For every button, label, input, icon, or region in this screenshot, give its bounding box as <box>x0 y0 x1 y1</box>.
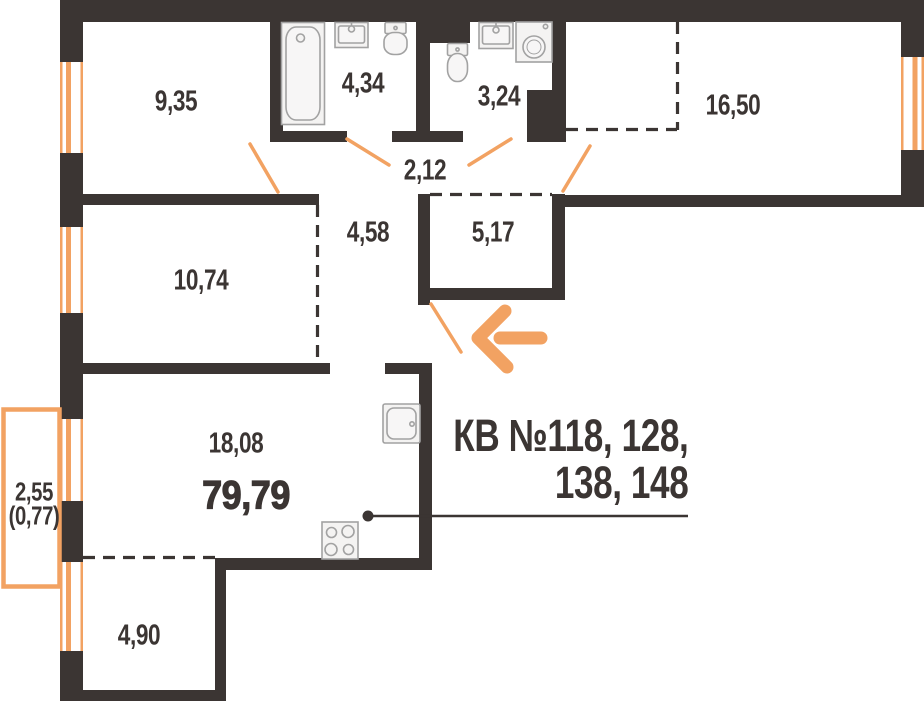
wall-room935-bottom <box>60 194 319 205</box>
door-swing-bath434 <box>347 139 389 165</box>
wall-closet-right <box>552 194 565 300</box>
room-area-label-1650: 16,50 <box>706 90 761 123</box>
wall-left-seg1 <box>60 0 83 62</box>
bathtub-icon <box>282 23 325 125</box>
floor-plan-drawing <box>0 0 924 701</box>
wall-top <box>60 0 924 22</box>
wall-bath434-bottom <box>270 131 347 142</box>
wall-bottom <box>60 690 226 701</box>
window-room490 <box>60 562 83 651</box>
room-area-label-324: 3,24 <box>478 81 520 114</box>
apartment-numbers: КВ №118, 128, 138, 148 <box>453 412 688 506</box>
wall-living-right <box>419 363 432 570</box>
room-area-label-1808: 18,08 <box>209 428 264 461</box>
window-room1650 <box>901 57 924 150</box>
room-area-label-1074: 10,74 <box>174 265 229 298</box>
duct-shaft-top <box>430 22 470 43</box>
window-living <box>60 419 83 501</box>
door-swing-bath324 <box>469 139 511 165</box>
wall-closet-bottom <box>418 288 565 300</box>
washing-machine-icon <box>516 22 552 62</box>
door-swing-entrance <box>431 304 461 352</box>
callout-dot <box>363 511 374 522</box>
floor-plan: 9,35 4,34 3,24 16,50 2,12 4,58 5,17 10,7… <box>0 0 924 701</box>
room-area-label-458: 4,58 <box>347 217 389 250</box>
wall-bath-mid-bottom <box>392 131 463 142</box>
balcony-area-reduced-label: (0,77) <box>9 501 60 532</box>
wall-room1074-bottom <box>60 363 330 374</box>
door-swing-room1650 <box>563 146 590 191</box>
apartment-numbers-line2: 138, 148 <box>453 459 688 506</box>
sink-icon-bath434 <box>335 23 368 48</box>
toilet-icon-bath324 <box>448 44 468 82</box>
apartment-numbers-line1: КВ №118, 128, <box>453 412 688 459</box>
total-area-label: 79,79 <box>202 474 290 519</box>
room-area-label-517: 5,17 <box>472 217 514 250</box>
window-room935 <box>60 62 83 153</box>
wall-right-seg1 <box>901 0 924 57</box>
wall-room490-right <box>215 558 226 701</box>
wall-bath-divider <box>416 22 430 131</box>
room-area-label-935: 9,35 <box>155 86 197 119</box>
wall-room1650-bottom <box>552 195 924 207</box>
toilet-icon-bath434 <box>384 23 407 55</box>
entrance-arrow-icon <box>478 311 541 367</box>
window-room1074 <box>60 227 83 313</box>
wall-left-seg4 <box>60 501 83 562</box>
kitchen-sink-icon <box>383 404 420 443</box>
stove-icon <box>322 522 358 559</box>
room-area-label-212: 2,12 <box>404 155 446 188</box>
duct-shaft-right <box>527 90 555 142</box>
callout-line <box>363 511 689 522</box>
room-area-label-434: 4,34 <box>342 68 384 101</box>
door-swing-room935 <box>250 144 278 192</box>
room-area-label-490: 4,90 <box>118 620 160 653</box>
sink-icon-bath324 <box>479 23 513 49</box>
wall-left-seg2 <box>60 153 83 227</box>
